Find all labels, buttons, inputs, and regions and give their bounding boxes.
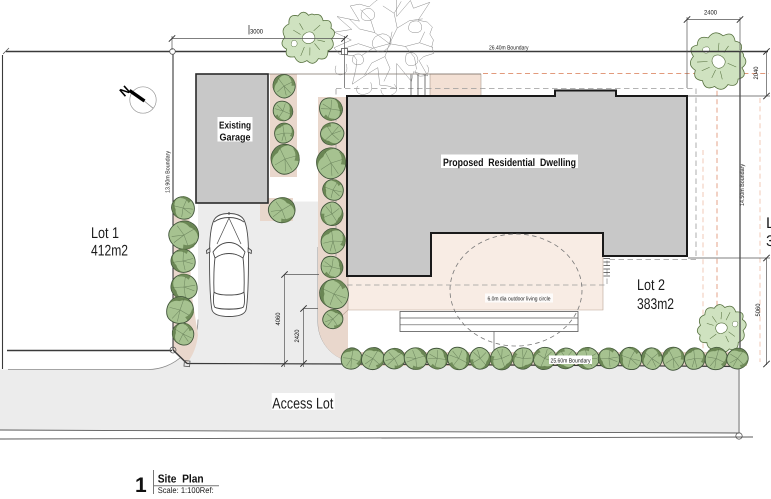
svg-text:412m2: 412m2	[91, 243, 128, 260]
svg-text:Lot 1: Lot 1	[91, 225, 119, 242]
svg-text:Lot 3: Lot 3	[766, 215, 771, 232]
svg-text:6.0m dia outdoor living circle: 6.0m dia outdoor living circle	[488, 296, 551, 303]
svg-text:26.40m Boundary: 26.40m Boundary	[489, 45, 529, 52]
svg-text:13.90m Boundary: 13.90m Boundary	[165, 151, 172, 193]
svg-text:Access Lot: Access Lot	[272, 395, 334, 412]
svg-text:Lot 2: Lot 2	[637, 277, 665, 294]
svg-text:383m2: 383m2	[637, 296, 674, 313]
svg-text:4060: 4060	[275, 312, 282, 325]
svg-text:Scale: 1:100Ref:: Scale: 1:100Ref:	[158, 485, 214, 494]
svg-text:5060: 5060	[755, 303, 762, 316]
svg-text:3000: 3000	[250, 29, 263, 36]
svg-text:1: 1	[135, 474, 147, 494]
svg-text:2400: 2400	[704, 10, 717, 17]
svg-text:2420: 2420	[294, 329, 301, 342]
svg-text:Existing: Existing	[219, 120, 251, 131]
svg-text:2040: 2040	[753, 66, 760, 79]
svg-text:14.50m Boundary: 14.50m Boundary	[739, 164, 746, 206]
svg-text:3: 3	[766, 233, 771, 250]
svg-text:Garage: Garage	[220, 133, 251, 144]
svg-text:Proposed Residential Dwellin: Proposed Residential Dwelling	[443, 157, 576, 169]
svg-text:25.60m Boundary: 25.60m Boundary	[551, 358, 591, 365]
svg-text:Site Plan: Site Plan	[158, 473, 204, 485]
